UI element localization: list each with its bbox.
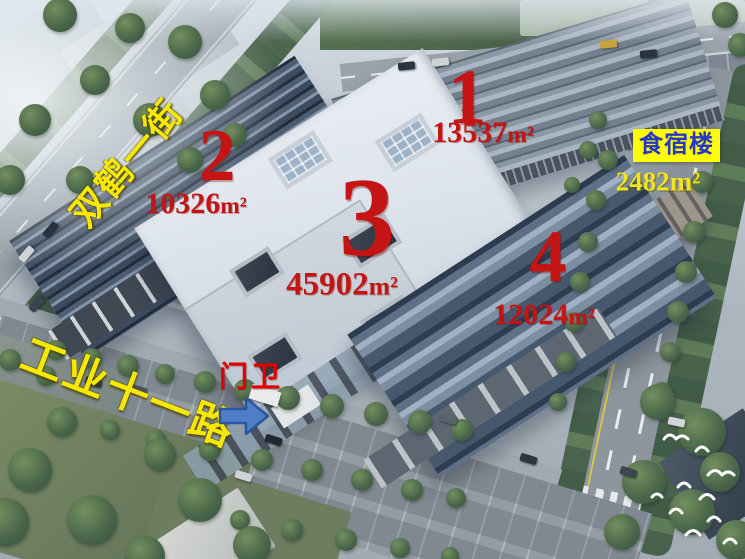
building-2-number: 2 [199,119,236,193]
building-4-number: 4 [530,220,567,294]
birds-flock [612,425,742,555]
facility-name-tag: 食宿楼 [633,129,720,162]
aerial-site-plan: 双鹤一街 工业十一路 1 13537m² 2 10326m² 3 45902m²… [0,0,745,559]
gate-arrow-icon [218,394,270,438]
tree [446,488,466,508]
tree [67,495,117,545]
tree [683,221,705,243]
tree [556,352,576,372]
tree [712,2,738,28]
facility-area: 2482m² [616,169,701,196]
tree [251,449,273,471]
tree [408,410,432,434]
skylight [268,130,333,189]
tree [390,538,410,558]
tree [675,261,697,283]
tree [194,371,216,393]
tree [233,526,271,559]
tree [578,232,598,252]
tree [667,301,689,323]
tree [115,13,145,43]
tree [80,65,110,95]
tree [144,439,176,471]
tree [335,529,357,551]
area-value: 2482 [616,167,670,197]
tree [570,272,590,292]
tree [579,141,597,159]
area-unit: m² [670,167,701,197]
tree [320,394,344,418]
tree [168,25,202,59]
area-unit: m² [220,193,247,219]
tree [364,402,388,426]
area-value: 13537 [432,116,507,149]
area-value: 12024 [493,298,568,331]
tree [200,80,230,110]
building-2-area: 10326m² [145,189,247,219]
tree [19,104,51,136]
tree [549,393,567,411]
tree [178,478,222,522]
tree [640,384,676,420]
area-unit: m² [568,304,595,330]
tree [564,177,580,193]
tree [441,547,459,559]
tree [8,448,52,492]
area-value: 45902 [286,267,369,303]
gate-label: 门卫 [219,364,283,393]
area-unit: m² [369,272,398,301]
tree [589,111,607,129]
tree [351,469,373,491]
tree [660,342,680,362]
building-3-number: 3 [339,162,395,274]
tree [281,519,303,541]
area-value: 10326 [145,187,220,220]
tree [728,33,745,57]
building-1-area: 13537m² [432,118,534,148]
tree [586,190,606,210]
tree [47,407,77,437]
building-4-area: 12024m² [493,300,595,330]
tree [100,420,120,440]
area-unit: m² [507,122,534,148]
tree [401,479,423,501]
tree [301,459,323,481]
building-3-area: 45902m² [286,269,398,302]
